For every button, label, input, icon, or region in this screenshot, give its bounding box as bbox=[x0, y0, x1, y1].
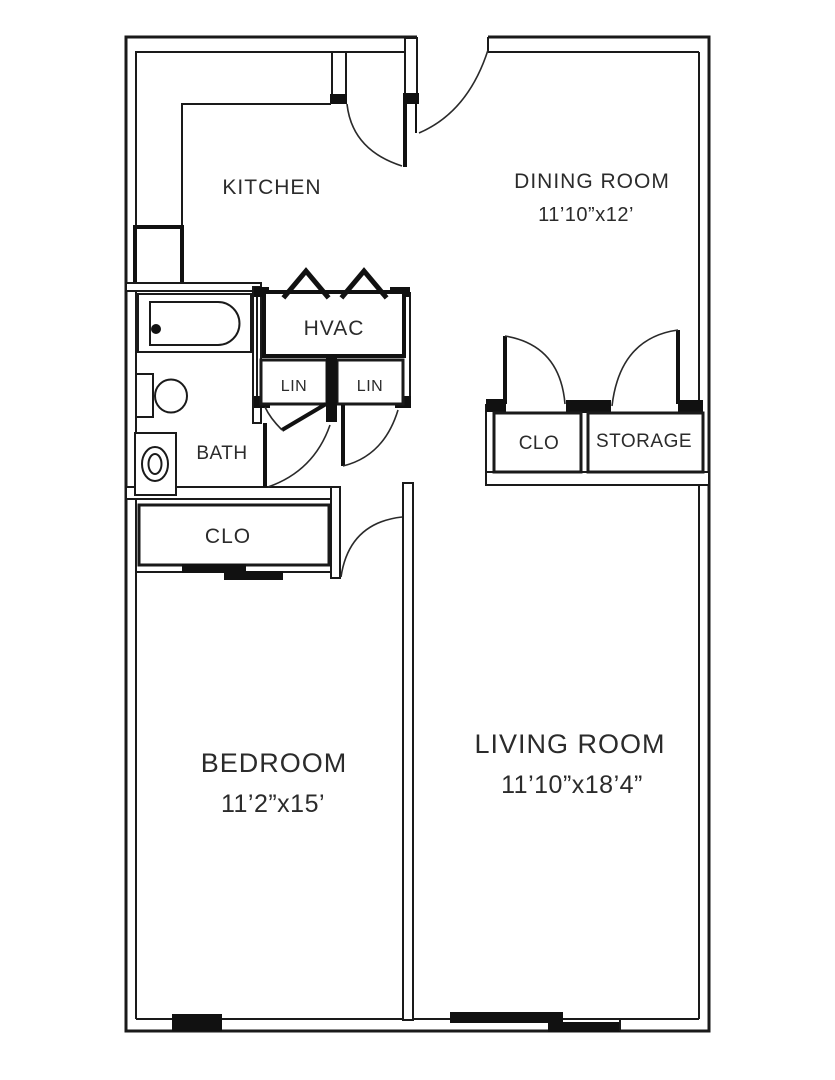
bath-label: BATH bbox=[196, 443, 247, 464]
kitchen-right-wall-cap bbox=[330, 94, 347, 104]
closet-row-south-wall bbox=[486, 472, 709, 485]
storage-label: STORAGE bbox=[596, 431, 692, 452]
living-sliding-door-panel-2 bbox=[548, 1022, 620, 1032]
living-room-dimensions: 11’10”x18’4” bbox=[501, 771, 643, 799]
bath-north-wall bbox=[126, 283, 261, 291]
bedroom-closet-slider-panel-2 bbox=[224, 571, 283, 580]
hall-closet-label: CLO bbox=[519, 433, 560, 454]
bedroom-living-partition-wall bbox=[403, 483, 413, 1020]
bedroom-window bbox=[172, 1014, 222, 1031]
linen-right-label: LIN bbox=[357, 378, 383, 395]
linen-right-door-swing-arc bbox=[343, 410, 398, 466]
bath-door-swing-arc bbox=[268, 425, 330, 487]
bedroom-closet-east-wall bbox=[331, 487, 340, 578]
toilet-tank bbox=[136, 374, 153, 417]
linen-left-door-leaf bbox=[282, 404, 326, 430]
linen-divider-wall bbox=[326, 356, 337, 422]
refrigerator bbox=[135, 227, 182, 286]
kitchen-counter bbox=[135, 104, 331, 226]
entry-door-swing-arc bbox=[419, 50, 488, 133]
hvac-label: HVAC bbox=[304, 317, 365, 340]
living-room-label: LIVING ROOM bbox=[474, 729, 665, 759]
dining-room-dimensions: 11’10”x12’ bbox=[538, 204, 634, 226]
living-sliding-door-panel-1 bbox=[450, 1012, 563, 1023]
storage-door-swing-arc bbox=[612, 330, 678, 406]
linen-left-door-swing-arc bbox=[265, 407, 282, 430]
kitchen-label: KITCHEN bbox=[222, 176, 321, 199]
bedroom-closet-label: CLO bbox=[205, 525, 251, 548]
kitchen-right-wall bbox=[332, 52, 346, 96]
bedroom-dimensions: 11’2”x15’ bbox=[221, 790, 325, 818]
floor-plan-drawing: KITCHEN DINING ROOM 11’10”x12’ BATH HVAC bbox=[0, 0, 835, 1080]
closet-row-stub-right bbox=[678, 400, 703, 413]
bathtub-drain bbox=[151, 324, 161, 334]
floor-plan: KITCHEN DINING ROOM 11’10”x12’ BATH HVAC bbox=[0, 0, 835, 1080]
bedroom-door-swing-arc bbox=[341, 517, 402, 577]
hall-closet-door-swing-arc bbox=[505, 336, 565, 404]
entry-pier-cap bbox=[403, 93, 419, 104]
sink-basin-inner bbox=[149, 454, 162, 474]
closet-row-stub-center bbox=[566, 400, 611, 413]
bathtub-basin bbox=[150, 302, 239, 345]
toilet-bowl bbox=[155, 380, 187, 413]
linen-left-label: LIN bbox=[281, 378, 307, 395]
entry-pier-wall bbox=[405, 38, 417, 96]
kitchen-door-swing-arc bbox=[347, 104, 402, 166]
bedroom-label: BEDROOM bbox=[201, 748, 348, 778]
dining-room-label: DINING ROOM bbox=[514, 170, 670, 193]
